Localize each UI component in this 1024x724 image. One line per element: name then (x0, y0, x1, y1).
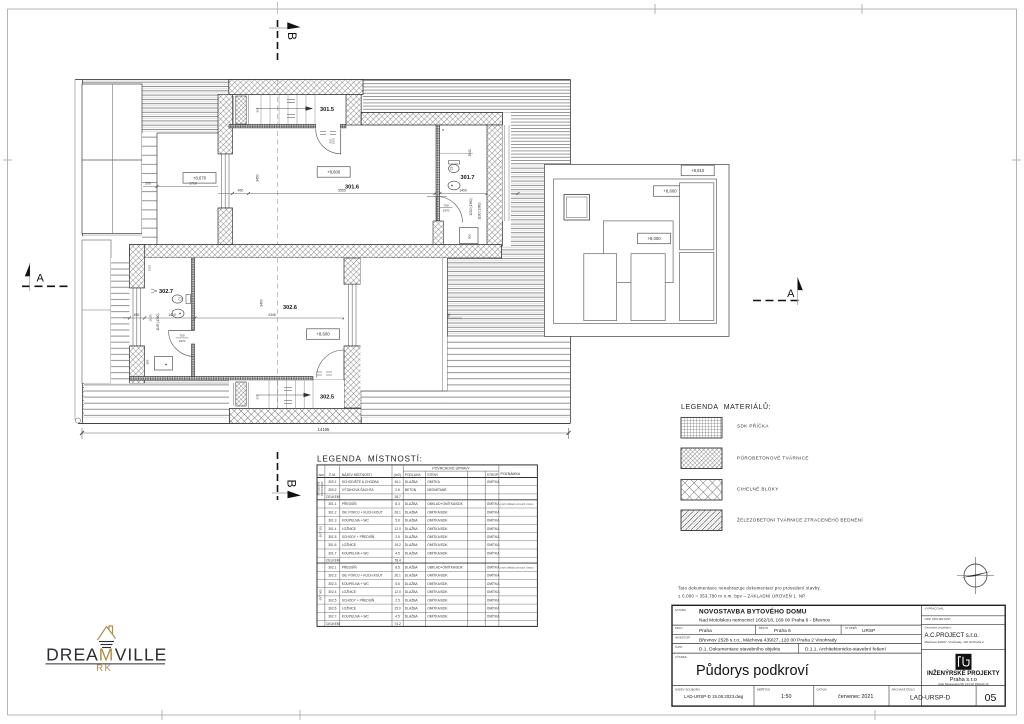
svg-text:SCHODIŠTĖ A CHODBA: SCHODIŠTĖ A CHODBA (342, 479, 380, 484)
svg-text:NEOMÍTANÉ: NEOMÍTANÉ (427, 487, 447, 492)
svg-text:700: 700 (179, 334, 184, 338)
svg-text:OMÍTKA: OMÍTKA (487, 510, 500, 514)
svg-text:301.2: 301.2 (328, 510, 336, 514)
svg-text:LOŽNICE: LOŽNICE (342, 526, 357, 531)
svg-text:OMÍTKA: OMÍTKA (427, 480, 440, 484)
svg-text:302.7: 302.7 (159, 289, 173, 295)
svg-text:302.6: 302.6 (328, 607, 336, 611)
svg-text:302.1: 302.1 (328, 566, 336, 570)
svg-text:Nad Motolskou nemocnicí 1662/1: Nad Motolskou nemocnicí 1662/18, 169 00 … (699, 618, 831, 624)
svg-text:LAD-URSP-D: LAD-URSP-D (910, 695, 951, 702)
svg-text:CIHELNÉ BLOKY: CIHELNÉ BLOKY (737, 486, 779, 492)
svg-text:OMÍTKA: OMÍTKA (487, 574, 500, 578)
svg-text:302.5: 302.5 (328, 598, 336, 602)
svg-text:JED: JED (318, 473, 325, 477)
svg-text:B: B (285, 479, 299, 487)
svg-text:DLAŽBA: DLAŽBA (405, 518, 419, 523)
svg-text:DLAŽBA: DLAŽBA (405, 479, 419, 484)
svg-text:OB. POKOJ + KUCH.KOUT: OB. POKOJ + KUCH.KOUT (342, 574, 383, 578)
svg-text:OMÍTKA/SDK: OMÍTKA/SDK (427, 598, 448, 602)
svg-text:300.1: 300.1 (328, 480, 336, 484)
svg-text:OMÍTKA/SDK: OMÍTKA/SDK (427, 607, 448, 611)
svg-text:302.3: 302.3 (328, 582, 336, 586)
svg-text:CELKEM: CELKEM (326, 558, 340, 562)
svg-text:1105 (1360): 1105 (1360) (156, 314, 160, 331)
svg-text:OMÍTKA/SDK: OMÍTKA/SDK (427, 527, 448, 531)
svg-text:LOŽNICE: LOŽNICE (342, 606, 357, 611)
svg-text:A.C.PROJECT s.r.o.: A.C.PROJECT s.r.o. (925, 633, 980, 639)
svg-text:OMÍTKA/SDK: OMÍTKA/SDK (427, 519, 448, 523)
svg-text:BETON: BETON (405, 488, 417, 492)
svg-text:301.5: 301.5 (320, 107, 334, 113)
svg-text:700: 700 (443, 203, 448, 207)
svg-text:A: A (787, 288, 795, 300)
svg-text:DLAŽBA: DLAŽBA (405, 573, 419, 578)
svg-text:OMÍTKA: OMÍTKA (487, 607, 500, 611)
svg-text:CELKEM: CELKEM (326, 622, 340, 626)
svg-text:PROSTORY: PROSTORY (320, 481, 324, 496)
svg-text:Č.M.: Č.M. (329, 472, 336, 477)
svg-text:850: 850 (256, 394, 260, 399)
svg-text:NÁZEV SOUBORU: NÁZEV SOUBORU (675, 688, 700, 692)
svg-text:12.0: 12.0 (394, 527, 401, 531)
svg-text:302.7: 302.7 (328, 615, 336, 619)
svg-text:SCHODY + PŘEDSÍŇ: SCHODY + PŘEDSÍŇ (342, 534, 375, 539)
svg-text:1210 (1360): 1210 (1360) (469, 198, 473, 215)
svg-text:STROP: STROP (487, 473, 499, 477)
svg-text:301.3: 301.3 (328, 519, 336, 523)
svg-text:900: 900 (468, 234, 472, 239)
svg-text:Tato dokumentace nenahrazuje d: Tato dokumentace nenahrazuje dokumentaci… (678, 586, 821, 591)
svg-text:DLAŽBA: DLAŽBA (405, 589, 419, 594)
svg-text:OMÍTKA: OMÍTKA (487, 527, 500, 531)
svg-text:BYT 301: BYT 301 (319, 526, 323, 538)
svg-text:18.7: 18.7 (394, 495, 401, 499)
svg-text:450: 450 (134, 313, 140, 317)
svg-text:± 0,000 = 353,780 m n.m. bpv –: ± 0,000 = 353,780 m n.m. bpv – ZÁKLADNÍ … (678, 594, 805, 599)
svg-text:DLAŽBA: DLAŽBA (405, 606, 419, 611)
svg-text:OMÍTKA: OMÍTKA (487, 598, 500, 602)
svg-text:DREA: DREA (46, 645, 99, 665)
svg-text:1:50: 1:50 (781, 694, 792, 700)
svg-text:8.5: 8.5 (395, 566, 400, 570)
svg-text:LOŽNICE: LOŽNICE (342, 542, 357, 547)
svg-text:2.6: 2.6 (395, 488, 400, 492)
svg-text:OBKLAD+OMÍTKA/SDK: OBKLAD+OMÍTKA/SDK (427, 502, 463, 506)
svg-text:19.2: 19.2 (394, 543, 401, 547)
svg-text:850: 850 (256, 107, 260, 112)
svg-text:ODP. PROJEKTANT: ODP. PROJEKTANT (925, 617, 952, 621)
svg-text:PŘEDSÍŇ: PŘEDSÍŇ (342, 565, 357, 570)
svg-text:Půdorys podkroví: Půdorys podkroví (696, 663, 809, 679)
svg-text:302.2: 302.2 (328, 574, 336, 578)
svg-text:15.0: 15.0 (394, 607, 401, 611)
svg-text:OMÍTKA: OMÍTKA (487, 582, 500, 586)
svg-text:NÁZEV MÍSTNOSTI: NÁZEV MÍSTNOSTI (342, 473, 372, 477)
svg-text:1970: 1970 (332, 137, 336, 144)
svg-text:(m2): (m2) (394, 473, 401, 477)
svg-text:ARCHIVNÍ ČÍSLO: ARCHIVNÍ ČÍSLO (892, 687, 916, 692)
svg-text:DLAŽBA: DLAŽBA (405, 550, 419, 555)
svg-text:DLAŽBA: DLAŽBA (405, 565, 419, 570)
svg-text:Břevnov 2528 s.r.o., Máchova 4: Břevnov 2528 s.r.o., Máchova 439/27, 120… (699, 637, 837, 643)
svg-text:OMÍTKA/SDK: OMÍTKA/SDK (427, 615, 448, 619)
svg-text:DLAŽBA: DLAŽBA (405, 581, 419, 586)
svg-text:+8,670: +8,670 (193, 175, 207, 180)
svg-text:SCHODY + PŘEDSÍŇ: SCHODY + PŘEDSÍŇ (342, 597, 375, 602)
svg-text:VÝTAHOVÁ ŠACHTA: VÝTAHOVÁ ŠACHTA (342, 487, 375, 492)
svg-text:OMÍTKA/SDK: OMÍTKA/SDK (427, 535, 448, 539)
svg-text:DLAŽBA: DLAŽBA (405, 509, 419, 514)
svg-text:4.5: 4.5 (395, 551, 400, 555)
svg-text:78.4: 78.4 (394, 558, 401, 562)
svg-text:4.5: 4.5 (395, 615, 400, 619)
svg-text:301.1: 301.1 (328, 502, 336, 506)
svg-text:OMÍTKA/SDK: OMÍTKA/SDK (427, 510, 448, 514)
svg-text:MÍSTO: MÍSTO (759, 626, 769, 630)
svg-text:KRAJ: KRAJ (675, 626, 683, 630)
svg-text:200: 200 (145, 182, 151, 186)
svg-text:1970: 1970 (443, 209, 450, 213)
svg-text:DLAŽBA: DLAŽBA (405, 597, 419, 602)
svg-text:26.1: 26.1 (394, 574, 401, 578)
svg-text:301.7: 301.7 (461, 175, 475, 181)
svg-text:INVESTOR: INVESTOR (675, 635, 690, 639)
svg-text:450: 450 (238, 189, 244, 193)
svg-text:74.2: 74.2 (394, 622, 401, 626)
svg-text:KOUPELNA + WC: KOUPELNA + WC (342, 551, 370, 555)
svg-text:OMÍTKA: OMÍTKA (487, 519, 500, 523)
svg-text:pruh obkladu za kuch. linkou: pruh obkladu za kuch. linkou (501, 502, 534, 506)
svg-text:B: B (285, 32, 299, 40)
svg-text:DLAŽBA: DLAŽBA (405, 534, 419, 539)
svg-text:BYT 302: BYT 302 (319, 589, 323, 601)
svg-text:14195: 14195 (318, 427, 330, 432)
svg-text:OMÍTKA: OMÍTKA (487, 543, 500, 547)
svg-text:1540: 1540 (468, 149, 472, 156)
svg-text:+8,810: +8,810 (691, 168, 705, 173)
svg-text:CELKEM: CELKEM (326, 495, 340, 499)
svg-text:LEGENDA MATERIÁLŮ:: LEGENDA MATERIÁLŮ: (681, 402, 771, 411)
svg-text:OMÍTKA: OMÍTKA (487, 615, 500, 619)
svg-text:OMÍTKA/SDK: OMÍTKA/SDK (427, 582, 448, 586)
svg-text:OMÍTKA/SDK: OMÍTKA/SDK (427, 551, 448, 555)
svg-text:OMÍTKA: OMÍTKA (487, 590, 500, 594)
svg-text:DLAŽBA: DLAŽBA (405, 614, 419, 619)
svg-text:URSP: URSP (862, 628, 875, 634)
svg-text:INŽENÝRSKÉ PROJEKTY: INŽENÝRSKÉ PROJEKTY (927, 669, 1000, 677)
svg-text:301.7: 301.7 (328, 551, 336, 555)
svg-text:STUPEŇ: STUPEŇ (845, 626, 857, 630)
svg-text:1100 (1360): 1100 (1360) (478, 203, 482, 220)
svg-text:PODLAHA: PODLAHA (405, 473, 422, 477)
svg-text:OMÍTKA/SDK: OMÍTKA/SDK (427, 543, 448, 547)
svg-text:LEGENDA MÍSTNOSTÍ:: LEGENDA MÍSTNOSTÍ: (317, 454, 423, 464)
svg-text:9,53: 9,53 (148, 265, 152, 271)
svg-text:+8,600: +8,600 (316, 332, 330, 337)
svg-text:302.6: 302.6 (283, 305, 297, 311)
svg-text:PÓROBETONOVÉ TVÁRNICE: PÓROBETONOVÉ TVÁRNICE (737, 455, 809, 461)
svg-text:OMÍTKA: OMÍTKA (487, 480, 500, 484)
svg-text:3450: 3450 (256, 174, 260, 182)
svg-text:RK: RK (96, 663, 112, 674)
svg-text:2.5: 2.5 (395, 535, 400, 539)
svg-text:Praha: Praha (699, 628, 712, 634)
svg-text:DLAŽBA: DLAŽBA (405, 526, 419, 531)
svg-text:VYPRACOVAL: VYPRACOVAL (925, 607, 945, 611)
svg-text:301.6: 301.6 (345, 184, 359, 190)
svg-text:PŘEDSÍŇ: PŘEDSÍŇ (342, 501, 357, 506)
svg-text:M: M (99, 645, 114, 665)
svg-text:sídlo Moskevská 58, 101 00 PRA: sídlo Moskevská 58, 101 00 PRAHA 10 (938, 682, 989, 686)
svg-text:POZNÁMKA: POZNÁMKA (501, 472, 521, 476)
svg-text:Praha 6: Praha 6 (774, 628, 791, 634)
svg-text:NOVOSTAVBA BYTOVÉHO DOMU: NOVOSTAVBA BYTOVÉHO DOMU (699, 607, 807, 616)
svg-text:OMÍTKA: OMÍTKA (487, 502, 500, 506)
svg-text:+9,000: +9,000 (647, 236, 661, 241)
svg-text:DATUM: DATUM (817, 688, 828, 692)
svg-text:pruh obkladu za kuch. linkou: pruh obkladu za kuch. linkou (501, 566, 534, 570)
svg-text:KOUPELNA + WC: KOUPELNA + WC (342, 615, 370, 619)
svg-text:301.6: 301.6 (328, 543, 336, 547)
svg-text:ČÁST: ČÁST (675, 644, 683, 649)
svg-text:STĖNY: STĖNY (427, 472, 439, 477)
svg-text:LAD-URSP-D 15.08.2023.dwg: LAD-URSP-D 15.08.2023.dwg (684, 694, 744, 699)
svg-text:červenec 2021: červenec 2021 (838, 694, 873, 700)
svg-text:Generalní projektant:: Generalní projektant: (925, 626, 952, 630)
svg-text:VÝKRES: VÝKRES (675, 655, 687, 659)
svg-text:VILLE: VILLE (115, 645, 168, 665)
svg-text:5.6: 5.6 (395, 519, 400, 523)
svg-text:+8,600: +8,600 (327, 170, 341, 175)
svg-text:16.1: 16.1 (394, 480, 401, 484)
svg-text:26.1: 26.1 (394, 510, 401, 514)
svg-text:+8,600: +8,600 (663, 189, 677, 194)
svg-text:POVRCHOVÉ ÚPRAVY: POVRCHOVÉ ÚPRAVY (432, 466, 470, 471)
svg-text:MĖŘÍTKO: MĖŘÍTKO (757, 687, 771, 692)
svg-text:D.1.1. Architektonicko-stavebn: D.1.1. Architektonicko-stavební řešení (805, 647, 886, 653)
svg-text:A: A (37, 273, 45, 285)
svg-text:300.2: 300.2 (328, 488, 336, 492)
svg-text:1410: 1410 (168, 313, 176, 317)
svg-text:Máchova 439/27, Vinohrady, 120: Máchova 439/27, Vinohrady, 120 00 Praha … (925, 640, 985, 644)
svg-text:OBKLAD+OMÍTKA/SDK: OBKLAD+OMÍTKA/SDK (427, 566, 463, 570)
svg-text:SDK PŘÍČKA: SDK PŘÍČKA (737, 422, 769, 429)
svg-text:8.3: 8.3 (395, 502, 400, 506)
svg-text:302.4: 302.4 (328, 590, 336, 594)
svg-text:1710: 1710 (189, 182, 197, 186)
svg-text:OMÍTKA: OMÍTKA (487, 551, 500, 555)
svg-text:301.5: 301.5 (328, 535, 336, 539)
svg-text:LOŽNICE: LOŽNICE (342, 589, 357, 594)
svg-text:DLAŽBA: DLAŽBA (405, 542, 419, 547)
svg-text:STAVBA: STAVBA (675, 608, 686, 612)
svg-text:2.5: 2.5 (395, 598, 400, 602)
svg-text:302.5: 302.5 (320, 395, 334, 401)
svg-text:KOUPELNA + WC: KOUPELNA + WC (342, 519, 370, 523)
svg-text:D.1. Dokumentace stavebního ob: D.1. Dokumentace stavebního objektu (699, 647, 781, 653)
svg-text:885: 885 (146, 359, 150, 364)
svg-text:OB. POKOJ + KUCH.KOUT: OB. POKOJ + KUCH.KOUT (342, 510, 383, 514)
svg-text:KOUPELNA + WC: KOUPELNA + WC (342, 582, 370, 586)
svg-text:3450: 3450 (260, 299, 264, 307)
svg-text:OMÍTKA/SDK: OMÍTKA/SDK (427, 590, 448, 594)
svg-text:OMÍTKA: OMÍTKA (487, 535, 500, 539)
svg-text:OMÍTKA: OMÍTKA (487, 566, 500, 570)
svg-text:05: 05 (985, 692, 997, 704)
svg-text:1400: 1400 (459, 189, 467, 193)
svg-text:4345: 4345 (268, 313, 276, 317)
svg-text:ŽELEZOBETON/ TVÁRNICE ZTRACENÉ: ŽELEZOBETON/ TVÁRNICE ZTRACENÉHO BEDNĖNÍ (737, 516, 863, 523)
svg-text:OMÍTKA/SDK: OMÍTKA/SDK (427, 574, 448, 578)
svg-text:5.6: 5.6 (395, 582, 400, 586)
svg-text:1970: 1970 (179, 339, 186, 343)
svg-text:5555: 5555 (338, 189, 346, 193)
svg-text:DLAŽBA: DLAŽBA (405, 501, 419, 506)
svg-text:12.0: 12.0 (394, 590, 401, 594)
svg-text:301.4: 301.4 (328, 527, 336, 531)
